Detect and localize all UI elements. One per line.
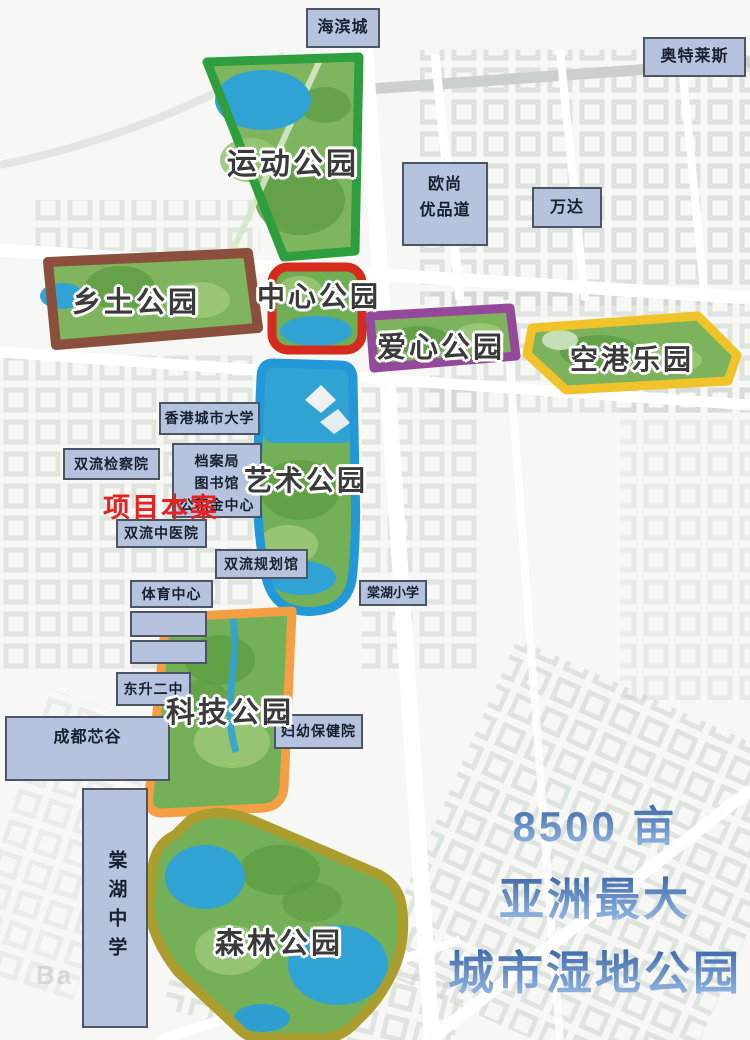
landmark-oushang-line1: 欧尚 [428, 172, 462, 198]
empty-label-box [130, 640, 207, 664]
landmark-wanda: 万达 [532, 187, 602, 228]
caption-line-asia-largest: 亚洲最大 [437, 863, 750, 928]
project-marker: 项目本案 [103, 486, 219, 525]
caption-line-area: 8500 亩 [437, 793, 750, 854]
park-label-central: 中心公园 [257, 275, 381, 315]
park-label-tech: 科技公园 [166, 689, 294, 731]
landmark-tanghu-primary: 棠湖小学 [359, 580, 427, 606]
caption-block: 8500 亩 亚洲最大 城市湿地公园 [437, 793, 750, 1003]
wetland-park-map: Ba 海滨城 奥特莱斯 欧尚 优品道 万达 香港城市大学 双流检察院 档案局 图… [0, 0, 750, 1040]
landmark-sports-center: 体育中心 [130, 580, 213, 608]
park-label-rural: 乡土公园 [72, 279, 200, 321]
landmark-archives-line1: 档案局 [195, 450, 240, 472]
caption-line-wetland-park: 城市湿地公园 [437, 937, 750, 1003]
park-label-art: 艺术公园 [244, 459, 368, 499]
landmark-shuangliu-procuratorate: 双流检察院 [63, 448, 160, 480]
park-label-love: 爱心公园 [377, 324, 505, 366]
park-label-airport: 空港乐园 [570, 338, 694, 378]
empty-label-box [130, 611, 207, 637]
landmark-chengdu-xingu: 成都芯谷 [5, 716, 170, 781]
landmark-hk-city-university: 香港城市大学 [159, 402, 260, 435]
park-label-forest: 森林公园 [215, 920, 343, 962]
landmark-tanghu-middle: 棠湖中学 [82, 788, 148, 1028]
landmark-haibincheng: 海滨城 [306, 8, 380, 48]
landmark-oushang: 欧尚 优品道 [402, 162, 488, 246]
landmark-oushang-line2: 优品道 [419, 198, 470, 224]
landmark-aotelaisi: 奥特莱斯 [643, 37, 746, 77]
landmark-shuangliu-planning-hall: 双流规划馆 [215, 549, 308, 579]
park-label-sports: 运动公园 [227, 139, 359, 183]
watermark: Ba [36, 960, 73, 991]
